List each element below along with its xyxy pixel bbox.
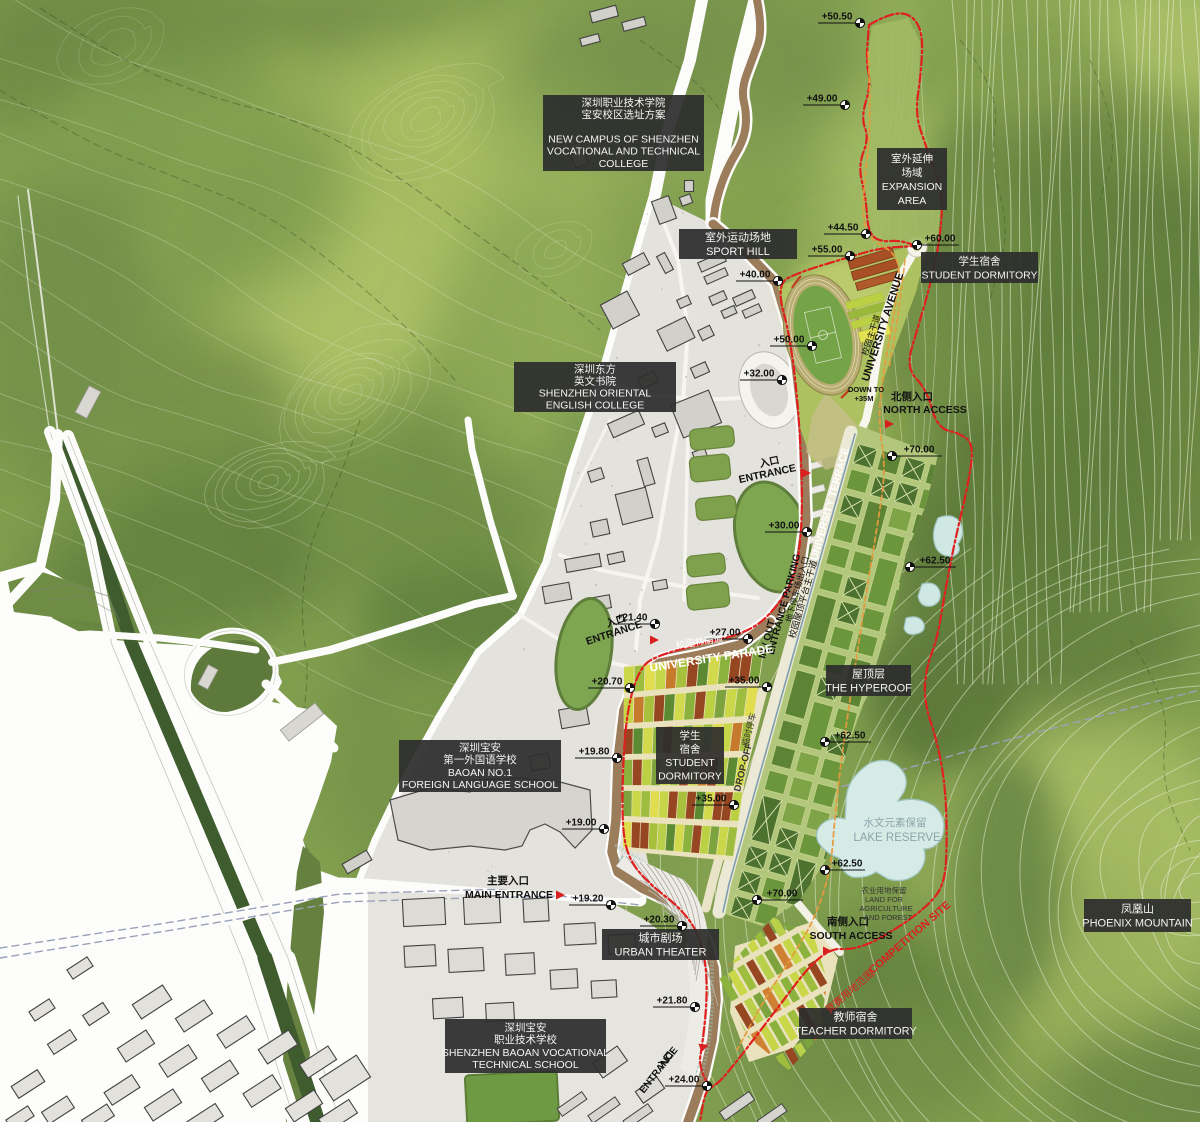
svg-text:室外运动场地: 室外运动场地 [705, 230, 771, 244]
svg-text:+19.80: +19.80 [579, 747, 610, 758]
svg-text:+40.00: +40.00 [740, 270, 771, 281]
svg-text:+50.00: +50.00 [774, 335, 805, 346]
svg-text:+32.00: +32.00 [744, 369, 775, 380]
svg-text:AREA: AREA [898, 195, 927, 207]
svg-text:SOUTH ACCESS: SOUTH ACCESS [809, 930, 892, 942]
svg-text:DOWN TO: DOWN TO [848, 385, 884, 394]
svg-text:+44.50: +44.50 [828, 223, 859, 234]
svg-text:+62.50: +62.50 [920, 556, 951, 567]
svg-text:THE HYPEROOF: THE HYPEROOF [825, 682, 912, 694]
svg-text:+20.30: +20.30 [644, 915, 675, 926]
svg-text:SHENZHEN ORIENTAL: SHENZHEN ORIENTAL [539, 387, 652, 399]
svg-text:AND FOREST: AND FOREST [864, 913, 913, 922]
svg-text:农业用地保留: 农业用地保留 [862, 885, 907, 895]
svg-text:屋顶层: 屋顶层 [852, 667, 885, 680]
svg-text:+21.80: +21.80 [657, 996, 688, 1007]
svg-text:+19.00: +19.00 [566, 818, 597, 829]
svg-text:LAKE RESERVE: LAKE RESERVE [853, 832, 941, 844]
svg-text:+20.70: +20.70 [592, 677, 623, 688]
svg-text:STUDENT: STUDENT [665, 757, 715, 769]
svg-text:水文元素保留: 水文元素保留 [864, 816, 927, 829]
svg-text:主要入口: 主要入口 [487, 874, 529, 887]
svg-text:职业技术学校: 职业技术学校 [494, 1033, 557, 1046]
svg-text:COLLEGE: COLLEGE [599, 158, 649, 170]
svg-text:STUDENT DORMITORY: STUDENT DORMITORY [921, 269, 1037, 281]
svg-text:+55.00: +55.00 [812, 245, 843, 256]
svg-text:深圳宝安: 深圳宝安 [459, 741, 501, 754]
svg-text:凤凰山: 凤凰山 [1121, 902, 1154, 915]
svg-text:第一外国语学校: 第一外国语学校 [443, 753, 517, 766]
svg-text:城市剧场: 城市剧场 [639, 930, 683, 944]
svg-text:TECHNICAL SCHOOL: TECHNICAL SCHOOL [472, 1059, 579, 1071]
svg-text:TEACHER DORMITORY: TEACHER DORMITORY [794, 1025, 917, 1037]
svg-text:+49.00: +49.00 [807, 94, 838, 105]
svg-text:BAOAN NO.1: BAOAN NO.1 [448, 767, 512, 779]
svg-text:+19.20: +19.20 [573, 894, 604, 905]
svg-text:+62.50: +62.50 [835, 731, 866, 742]
svg-text:SPORT HILL: SPORT HILL [706, 246, 770, 258]
svg-text:EXPANSION: EXPANSION [882, 181, 943, 193]
svg-text:+35M: +35M [855, 394, 874, 403]
svg-text:南侧入口: 南侧入口 [827, 915, 869, 928]
svg-text:场域: 场域 [902, 166, 923, 179]
svg-text:学生: 学生 [680, 729, 701, 742]
svg-text:LAND FOR: LAND FOR [865, 895, 904, 904]
svg-text:AGRICULTURE: AGRICULTURE [859, 904, 912, 913]
svg-text:NEW CAMPUS OF SHENZHEN: NEW CAMPUS OF SHENZHEN [548, 134, 699, 146]
svg-text:英文书院: 英文书院 [574, 374, 616, 387]
svg-text:室外延伸: 室外延伸 [891, 152, 933, 165]
svg-text:+30.00: +30.00 [769, 521, 800, 532]
svg-text:URBAN THEATER: URBAN THEATER [615, 946, 707, 958]
svg-text:+62.50: +62.50 [832, 859, 863, 870]
svg-text:SHENZHEN BAOAN VOCATIONAL: SHENZHEN BAOAN VOCATIONAL [442, 1047, 609, 1059]
svg-text:MAIN ENTRANCE: MAIN ENTRANCE [465, 889, 553, 901]
svg-text:NORTH ACCESS: NORTH ACCESS [883, 404, 967, 416]
svg-text:+60.00: +60.00 [925, 234, 956, 245]
svg-text:FOREIGN LANGUAGE SCHOOL: FOREIGN LANGUAGE SCHOOL [402, 779, 559, 791]
svg-text:+70.00: +70.00 [767, 889, 798, 900]
svg-text:+35.00: +35.00 [696, 794, 727, 805]
svg-text:深圳职业技术学院: 深圳职业技术学院 [582, 96, 666, 109]
svg-text:深圳东方: 深圳东方 [574, 362, 616, 375]
svg-text:宝安校区选址方案: 宝安校区选址方案 [582, 108, 666, 121]
svg-text:PHOENIX MOUNTAIN: PHOENIX MOUNTAIN [1082, 917, 1192, 929]
svg-text:DORMITORY: DORMITORY [658, 771, 722, 783]
svg-text:北侧入口: 北侧入口 [891, 390, 933, 403]
svg-text:学生宿舍: 学生宿舍 [959, 254, 1001, 267]
svg-text:+35.00: +35.00 [729, 676, 760, 687]
svg-text:宿舍: 宿舍 [680, 743, 701, 756]
svg-text:+24.00: +24.00 [669, 1075, 700, 1086]
svg-text:教师宿舍: 教师宿舍 [834, 1009, 878, 1023]
svg-text:ENGLISH COLLEGE: ENGLISH COLLEGE [546, 399, 645, 411]
svg-text:VOCATIONAL AND TECHNICAL: VOCATIONAL AND TECHNICAL [547, 146, 700, 158]
svg-text:深圳宝安: 深圳宝安 [505, 1021, 547, 1034]
svg-text:+70.00: +70.00 [904, 445, 935, 456]
svg-text:+50.50: +50.50 [822, 12, 853, 23]
